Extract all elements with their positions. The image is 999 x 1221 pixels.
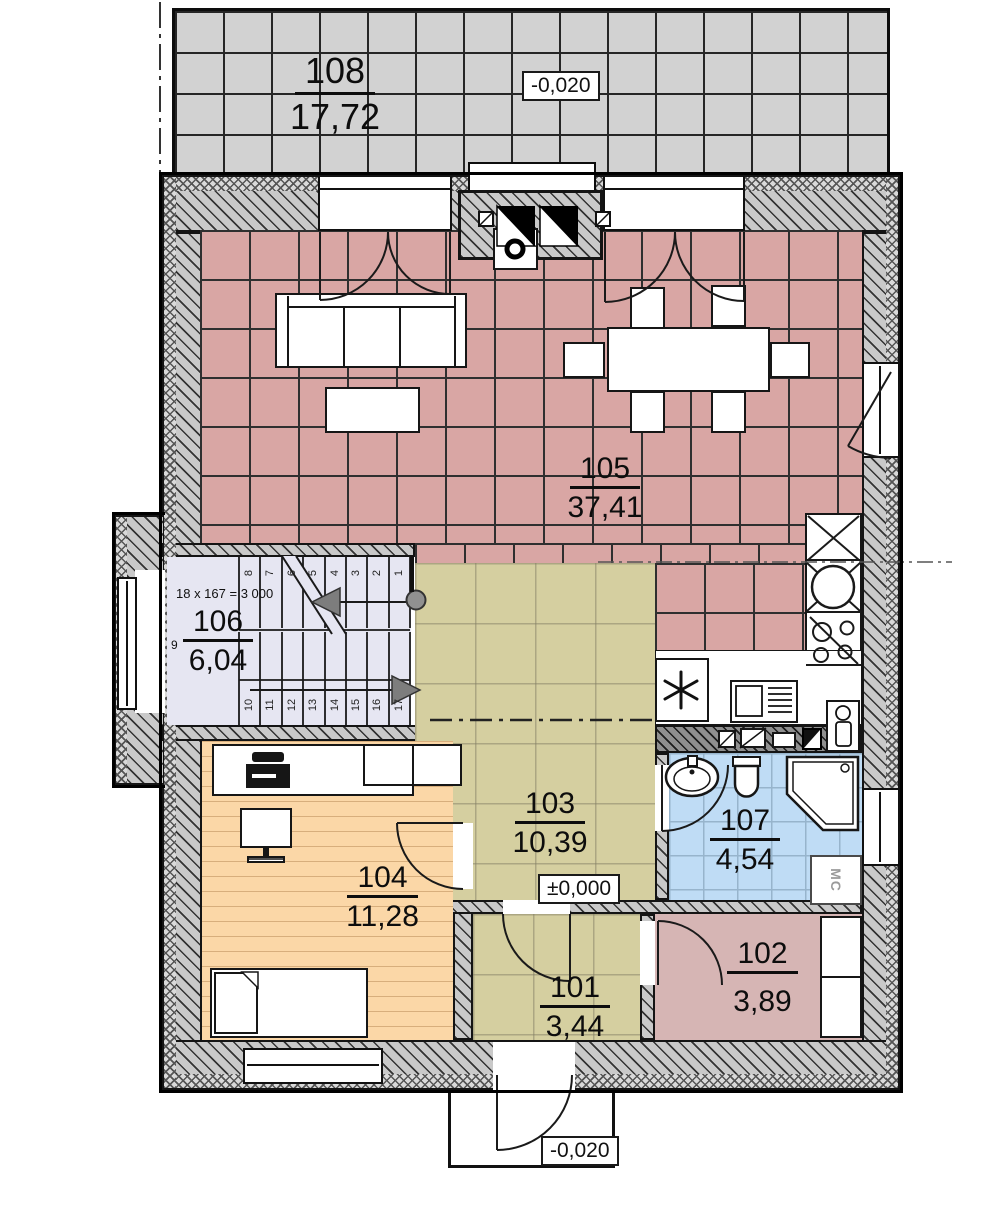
room-106-area: 6,04 — [172, 645, 264, 677]
pillow-fold — [242, 972, 258, 988]
stair-step-label: 10 — [243, 694, 257, 716]
stove-symbol — [810, 617, 858, 664]
hall-elevation: ±0,000 — [538, 874, 620, 904]
chimney-flues — [479, 206, 610, 246]
room-108-area: 17,72 — [250, 98, 420, 137]
stair-step-label: 12 — [286, 694, 300, 716]
stair-step-label: 13 — [307, 694, 321, 716]
stair-step-label: 6 — [286, 562, 300, 584]
room-103-area: 10,39 — [470, 827, 630, 859]
stair-step-9: 9 — [171, 638, 178, 652]
stair-step-label: 8 — [243, 562, 257, 584]
kitchen-sink-symbol — [807, 563, 860, 611]
room-102-area: 3,89 — [700, 986, 825, 1018]
stove-pipe-ring — [507, 241, 523, 257]
plumbing-box-triangle — [804, 730, 820, 748]
fridge-snowflake-icon — [665, 672, 697, 708]
room-102-label: 102 3,89 — [700, 938, 825, 1019]
plumbing-box-diag — [718, 730, 736, 748]
room-105-area: 37,41 — [525, 492, 685, 524]
right-door-swing — [848, 372, 891, 458]
stair-newel-post — [407, 591, 426, 610]
stair-formula: 18 x 167 = 3 000 — [176, 586, 273, 601]
kitchen-sink-unit-detail — [836, 706, 851, 746]
room-105-label: 105 37,41 — [525, 453, 685, 525]
terrace-elevation: -0,020 — [522, 71, 600, 101]
room-107-label: 107 4,54 — [685, 805, 805, 877]
stair-step-label: 15 — [350, 694, 364, 716]
terrace-door-right-swing — [605, 232, 744, 302]
stair-step-label: 16 — [371, 694, 385, 716]
room-108-number: 108 — [295, 52, 375, 95]
room-104-label: 104 11,28 — [300, 862, 465, 934]
porch-elevation: -0,020 — [541, 1136, 619, 1166]
room-105-number: 105 — [570, 453, 640, 489]
room-101-number: 101 — [540, 972, 610, 1008]
stair-step-label: 11 — [264, 694, 278, 716]
room-106-number: 106 — [183, 606, 253, 642]
terrace-door-left-swing — [320, 232, 450, 300]
room-103-number: 103 — [515, 788, 585, 824]
room-106-label: 106 6,04 — [172, 606, 264, 678]
plumbing-box-diag — [740, 728, 766, 748]
room-101-label: 101 3,44 — [500, 972, 650, 1044]
stair-step-label: 3 — [350, 562, 364, 584]
room-104-number: 104 — [347, 862, 417, 898]
kitchen-cabinet-detail — [736, 686, 792, 716]
room-107-area: 4,54 — [685, 844, 805, 876]
toilet-icon — [733, 757, 760, 797]
room-107-number: 107 — [710, 805, 780, 841]
stair-step-label: 5 — [307, 562, 321, 584]
room-101-area: 3,44 — [500, 1011, 650, 1043]
room-104-area: 11,28 — [300, 901, 465, 933]
stair-step-label: 14 — [329, 694, 343, 716]
room-103-label: 103 10,39 — [470, 788, 630, 860]
floor-plan: МС — [0, 0, 999, 1221]
room-102-number: 102 — [727, 938, 797, 974]
stair-step-label: 4 — [329, 562, 343, 584]
bath-sink-icon — [666, 756, 718, 796]
room-108-label: 108 17,72 — [250, 52, 420, 137]
stair-step-label: 2 — [371, 562, 385, 584]
stair-step-label: 7 — [264, 562, 278, 584]
stair-step-label: 1 — [393, 562, 407, 584]
stair-step-label: 17 — [393, 694, 407, 716]
